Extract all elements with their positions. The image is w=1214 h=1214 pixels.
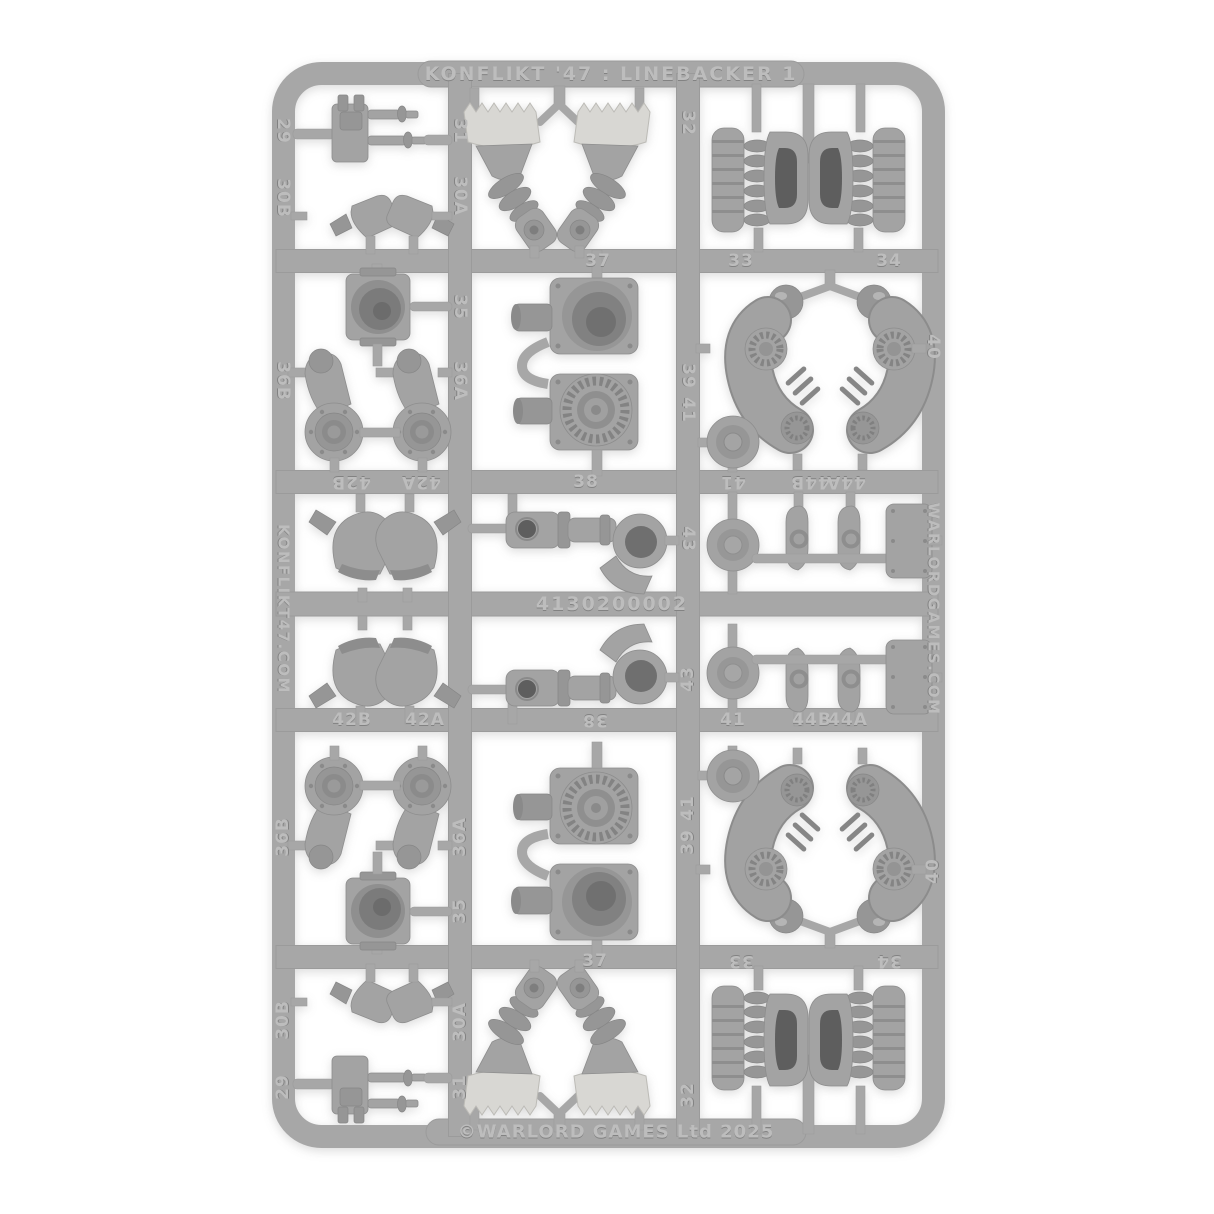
part-number-label: 43 bbox=[678, 666, 698, 692]
part-38-sockets bbox=[511, 250, 638, 476]
part-number-label: 32 bbox=[678, 1082, 698, 1108]
part-29-weapon bbox=[293, 95, 452, 162]
part-number-label: 35 bbox=[450, 294, 470, 320]
part-number-label: 36B bbox=[273, 361, 293, 401]
part-number-label: 36A bbox=[450, 817, 470, 857]
part-number-label: 30A bbox=[450, 176, 470, 216]
left-rail-url: KONFLIKT47.COM bbox=[275, 524, 293, 694]
sprue-title: KONFLIKT '47 : LINEBACKER 1 bbox=[425, 63, 798, 85]
part-number-label: 44B bbox=[792, 710, 832, 730]
photo-stage: KONFLIKT '47 : LINEBACKER 1 4130200002 K… bbox=[0, 0, 1214, 1214]
rail-v1 bbox=[449, 74, 472, 1137]
part-number-label: 38 bbox=[573, 472, 599, 492]
part-41-disc bbox=[698, 416, 759, 472]
part-42-helmets bbox=[309, 494, 461, 602]
part-number-label: 39 bbox=[678, 363, 698, 389]
part-36-arms bbox=[288, 349, 452, 472]
part-35-socket bbox=[346, 264, 452, 366]
part-number-label: 40 bbox=[923, 334, 943, 360]
part-36A-arm bbox=[376, 349, 451, 472]
part-number-label: 37 bbox=[582, 951, 608, 971]
part-36B-arm bbox=[288, 349, 363, 472]
part-number-label: 42B bbox=[331, 472, 371, 492]
part-number-label: 42A bbox=[405, 710, 445, 730]
copyright-text: ©WARLORD GAMES Ltd 2025 bbox=[458, 1122, 775, 1143]
part-number-label: 34 bbox=[876, 251, 902, 271]
sprue-photo: KONFLIKT '47 : LINEBACKER 1 4130200002 K… bbox=[0, 0, 1214, 1214]
product-code: 4130200002 bbox=[536, 593, 688, 615]
part-number-label: 44A bbox=[828, 710, 868, 730]
part-number-label: 43 bbox=[678, 526, 698, 552]
part-number-label: 32 bbox=[678, 110, 698, 136]
part-40-claw bbox=[839, 285, 915, 470]
model-sprue: KONFLIKT '47 : LINEBACKER 1 4130200002 K… bbox=[273, 61, 943, 1145]
part-number-label: 42B bbox=[332, 710, 372, 730]
part-number-label: 38 bbox=[582, 710, 608, 730]
part-number-label: 41 bbox=[678, 397, 698, 423]
part-number-label: 29 bbox=[273, 118, 293, 144]
part-number-label: 30B bbox=[273, 178, 293, 218]
part-number-label: 29 bbox=[273, 1074, 293, 1100]
part-number-label: 31 bbox=[450, 1074, 470, 1100]
part-number-label: 41 bbox=[720, 472, 746, 492]
part-number-label: 33 bbox=[728, 951, 754, 971]
part-number-label: 39 bbox=[678, 829, 698, 855]
part-number-label: 36B bbox=[273, 817, 293, 857]
part-number-label: 41 bbox=[678, 795, 698, 821]
part-number-label: 30B bbox=[273, 1000, 293, 1040]
part-33-34-grips bbox=[712, 84, 905, 252]
part-number-label: 44B bbox=[790, 472, 830, 492]
sprue-top-half-parts bbox=[288, 84, 942, 602]
part-number-label: 35 bbox=[450, 898, 470, 924]
part-number-label: 40 bbox=[923, 858, 943, 884]
part-number-label: 44A bbox=[826, 472, 866, 492]
part-number-label: 36A bbox=[450, 361, 470, 401]
part-number-label: 33 bbox=[728, 251, 754, 271]
part-41-44-smalls bbox=[707, 492, 942, 594]
part-number-label: 34 bbox=[876, 951, 902, 971]
part-number-label: 37 bbox=[585, 251, 611, 271]
part-number-label: 30A bbox=[450, 1002, 470, 1042]
sprue-bottom-half-parts bbox=[288, 616, 942, 1134]
part-number-label: 31 bbox=[450, 118, 470, 144]
part-30-brackets bbox=[291, 195, 454, 254]
part-41-disc-small bbox=[707, 492, 759, 594]
part-number-label: 42A bbox=[401, 472, 441, 492]
part-39-40-claws bbox=[696, 270, 926, 472]
part-43-forearm bbox=[468, 494, 679, 594]
part-33-grip bbox=[712, 84, 808, 252]
part-37-legs bbox=[464, 86, 650, 258]
part-number-label: 41 bbox=[720, 710, 746, 730]
part-34-grip bbox=[809, 84, 905, 252]
right-rail-url: WARLORDGAMES.COM bbox=[925, 502, 943, 715]
